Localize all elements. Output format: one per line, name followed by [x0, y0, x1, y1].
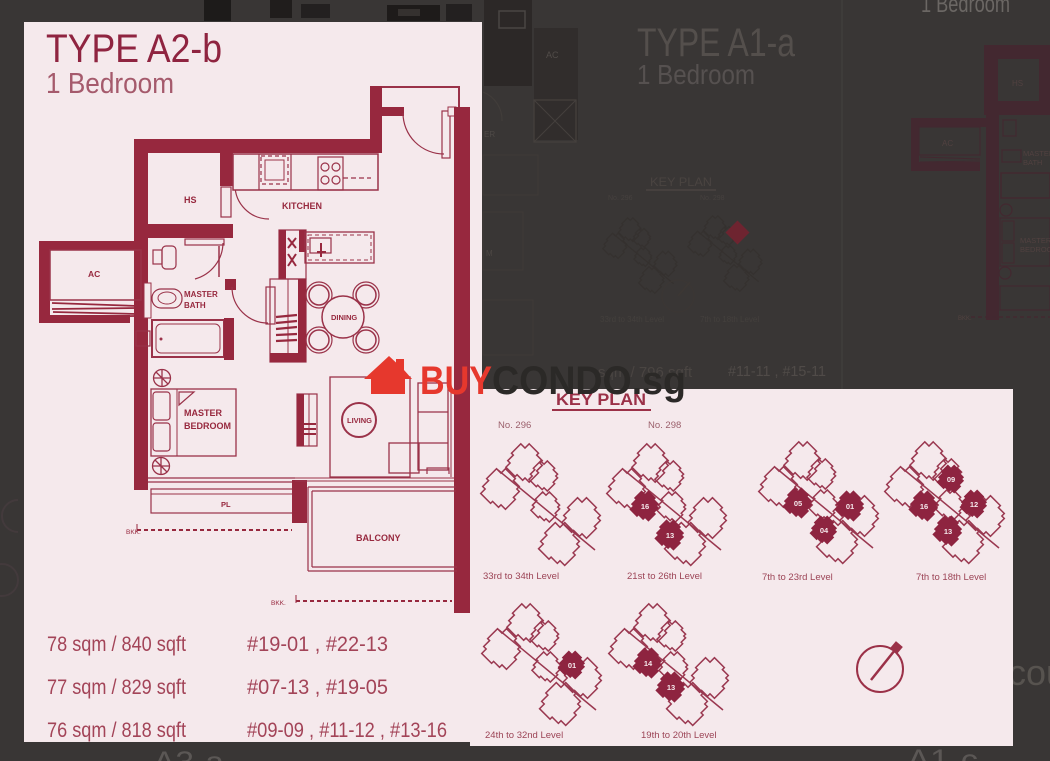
svg-text:AC: AC: [88, 269, 100, 279]
svg-text:21st to 26th Level: 21st to 26th Level: [627, 571, 702, 582]
svg-text:7th to 23rd Level: 7th to 23rd Level: [762, 572, 833, 583]
svg-text:No. 296: No. 296: [498, 420, 531, 431]
svg-text:1 Bedroom: 1 Bedroom: [921, 0, 1010, 18]
svg-text:16: 16: [641, 502, 649, 511]
svg-text:LIVING: LIVING: [347, 416, 372, 425]
svg-text:CONDO.sg: CONDO.sg: [492, 359, 686, 403]
svg-text:HS: HS: [184, 195, 197, 205]
svg-text:HS: HS: [1012, 79, 1023, 88]
svg-text:7th to 18th Level: 7th to 18th Level: [916, 572, 986, 583]
svg-text:BEDROOM: BEDROOM: [184, 421, 231, 431]
svg-text:12: 12: [970, 500, 978, 509]
svg-text:PL: PL: [221, 500, 231, 509]
svg-text:DINING: DINING: [331, 313, 357, 322]
svg-text:MASTER: MASTER: [1023, 149, 1050, 158]
svg-text:04: 04: [820, 526, 829, 535]
svg-text:M: M: [486, 249, 493, 258]
svg-text:33rd to 34th Level: 33rd to 34th Level: [600, 315, 664, 324]
svg-text:KITCHEN: KITCHEN: [282, 201, 322, 211]
svg-text:AC: AC: [942, 139, 953, 148]
svg-text:05: 05: [794, 499, 802, 508]
svg-text:AC: AC: [546, 50, 559, 60]
svg-text:1 Bedroom: 1 Bedroom: [46, 68, 174, 100]
svg-text:77 sqm / 829 sqft: 77 sqm / 829 sqft: [47, 676, 186, 699]
svg-text:13: 13: [666, 531, 674, 540]
svg-text:BALCONY: BALCONY: [356, 533, 401, 543]
svg-text:TYPE A2-b: TYPE A2-b: [46, 27, 222, 71]
svg-text:14: 14: [644, 659, 653, 668]
svg-text:19th to 20th Level: 19th to 20th Level: [641, 730, 717, 741]
svg-text:01: 01: [846, 502, 854, 511]
svg-text:BUY: BUY: [420, 359, 492, 403]
svg-text:33rd to 34th Level: 33rd to 34th Level: [483, 571, 559, 582]
svg-text:24th to 32nd Level: 24th to 32nd Level: [485, 730, 563, 741]
svg-text:16: 16: [920, 502, 928, 511]
svg-text:1 Bedroom: 1 Bedroom: [637, 59, 755, 90]
svg-text:No. 296: No. 296: [608, 195, 633, 202]
svg-text:09: 09: [947, 475, 955, 484]
svg-text:KEY PLAN: KEY PLAN: [650, 175, 712, 189]
svg-text:BATH: BATH: [1023, 158, 1042, 167]
svg-text:MASTER: MASTER: [184, 290, 218, 299]
svg-text:BKK.: BKK.: [126, 529, 141, 536]
svg-text:7th to 18th Level: 7th to 18th Level: [700, 315, 759, 324]
svg-text:01: 01: [568, 661, 576, 670]
svg-text:78 sqm / 840 sqft: 78 sqm / 840 sqft: [47, 633, 186, 656]
svg-text:#11-11 , #15-11: #11-11 , #15-11: [728, 363, 826, 380]
svg-text:13: 13: [667, 683, 675, 692]
svg-text:#09-09 , #11-12 , #13-16: #09-09 , #11-12 , #13-16: [247, 719, 447, 742]
svg-text:#19-01 , #22-13: #19-01 , #22-13: [247, 633, 388, 656]
svg-text:No. 298: No. 298: [700, 195, 725, 202]
svg-text:A3-a: A3-a: [153, 746, 224, 761]
svg-text:A1-c: A1-c: [907, 744, 978, 761]
svg-text:cou: cou: [1008, 652, 1050, 693]
svg-text:BATH: BATH: [184, 301, 206, 310]
svg-text:#07-13 , #19-05: #07-13 , #19-05: [247, 676, 388, 699]
svg-text:No. 298: No. 298: [648, 420, 681, 431]
svg-text:MASTER: MASTER: [1020, 236, 1050, 245]
svg-text:13: 13: [944, 527, 952, 536]
svg-text:MASTER: MASTER: [184, 408, 223, 418]
svg-text:BKK.: BKK.: [271, 600, 286, 607]
svg-text:BEDROOM: BEDROOM: [1020, 245, 1050, 254]
svg-text:ER: ER: [484, 130, 495, 139]
svg-text:76 sqm / 818 sqft: 76 sqm / 818 sqft: [47, 719, 186, 742]
svg-text:BKK.: BKK.: [958, 316, 972, 322]
